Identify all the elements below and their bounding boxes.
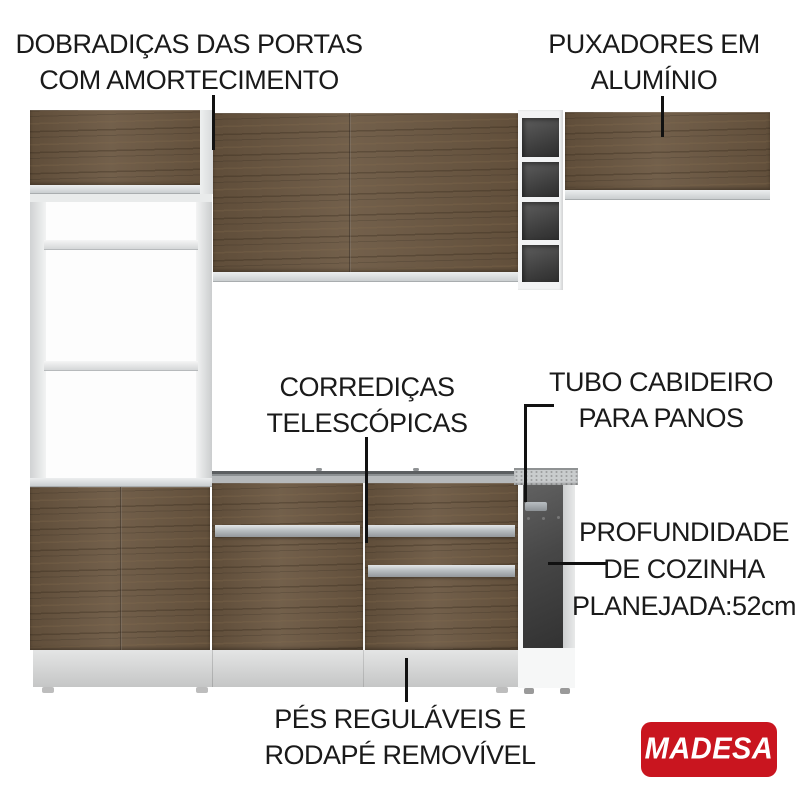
aluminum-handle xyxy=(368,525,515,537)
label-tube-line1: TUBO CABIDEIRO xyxy=(549,364,773,400)
frame-left-wall xyxy=(30,194,46,478)
label-slides: CORREDIÇAS TELESCÓPICAS xyxy=(266,369,467,441)
screw-dot xyxy=(527,517,530,520)
tall-cabinet-lower-strip xyxy=(30,478,212,487)
tall-cabinet-lower-doors xyxy=(30,487,210,650)
door-seam xyxy=(120,487,122,650)
niche-cubby xyxy=(522,202,559,240)
toe-kick xyxy=(33,650,518,687)
label-hinges: DOBRADIÇAS DAS PORTAS COM AMORTECIMENTO xyxy=(15,26,362,98)
frame-right-wall xyxy=(196,194,212,478)
tall-cabinet-shelf-upper xyxy=(44,240,198,250)
adjustable-foot xyxy=(496,687,508,693)
tall-cabinet-top-strip xyxy=(30,185,212,194)
niche-cubby xyxy=(522,162,559,197)
countertop-screw xyxy=(413,468,419,471)
label-hinges-line1: DOBRADIÇAS DAS PORTAS xyxy=(15,26,362,62)
label-handles-line1: PUXADORES EM xyxy=(548,26,760,62)
label-feet-line2: RODAPÉ REMOVÍVEL xyxy=(264,737,535,773)
door-seam xyxy=(349,113,351,272)
callout-line-hinges xyxy=(212,95,215,150)
label-depth-line3: PLANEJADA:52cm xyxy=(572,588,796,625)
label-hinges-line2: COM AMORTECIMENTO xyxy=(15,62,362,98)
countertop-screw xyxy=(316,468,322,471)
plinth-seam xyxy=(212,650,213,687)
label-slides-line1: CORREDIÇAS xyxy=(266,369,467,405)
base-cabinet-left xyxy=(212,483,363,650)
label-slides-line2: TELESCÓPICAS xyxy=(266,405,467,441)
towel-tube-bracket xyxy=(525,502,547,511)
adjustable-foot xyxy=(196,687,208,693)
base-drawer-stack xyxy=(365,483,518,650)
label-handles-line2: ALUMÍNIO xyxy=(548,62,760,98)
adjustable-foot xyxy=(524,688,534,694)
aluminum-handle xyxy=(215,525,360,537)
callout-line-handles xyxy=(661,96,664,137)
aluminum-handle xyxy=(368,565,515,577)
label-depth-line1: PROFUNDIDADE xyxy=(572,514,796,551)
tall-cabinet-top-door xyxy=(30,110,210,185)
label-tube: TUBO CABIDEIRO PARA PANOS xyxy=(549,364,773,436)
frame-top-edge xyxy=(30,194,212,202)
madesa-logo: MADESA xyxy=(641,722,777,777)
label-feet-line1: PÉS REGULÁVEIS E xyxy=(264,701,535,737)
upper-middle-cabinet xyxy=(213,113,518,272)
label-depth-line2: DE COZINHA xyxy=(572,551,796,588)
label-depth: PROFUNDIDADE DE COZINHA PLANEJADA:52cm xyxy=(572,514,796,625)
screw-dot xyxy=(557,516,560,519)
tall-cabinet-open-frame xyxy=(30,194,212,478)
callout-line-feet xyxy=(405,658,408,702)
niche-cubby xyxy=(522,118,559,157)
label-tube-line2: PARA PANOS xyxy=(549,400,773,436)
end-unit-body xyxy=(518,483,575,688)
adjustable-foot xyxy=(560,688,570,694)
product-annotation-image: DOBRADIÇAS DAS PORTAS COM AMORTECIMENTO … xyxy=(0,0,800,800)
upper-right-cabinet-strip xyxy=(565,190,770,200)
callout-line-slides xyxy=(365,437,368,543)
label-handles: PUXADORES EM ALUMÍNIO xyxy=(548,26,760,98)
adjustable-foot xyxy=(42,687,54,693)
label-feet: PÉS REGULÁVEIS E RODAPÉ REMOVÍVEL xyxy=(264,701,535,773)
tall-cabinet-shelf-lower xyxy=(44,361,198,371)
bottle-niche-column xyxy=(518,110,563,290)
upper-right-cabinet xyxy=(565,112,770,190)
upper-middle-cabinet-strip xyxy=(213,272,518,282)
plinth-seam xyxy=(363,650,364,687)
callout-line-tube-vertical xyxy=(524,404,527,502)
madesa-logo-text: MADESA xyxy=(645,732,774,767)
screw-dot xyxy=(542,517,545,520)
niche-cubby xyxy=(522,245,559,282)
